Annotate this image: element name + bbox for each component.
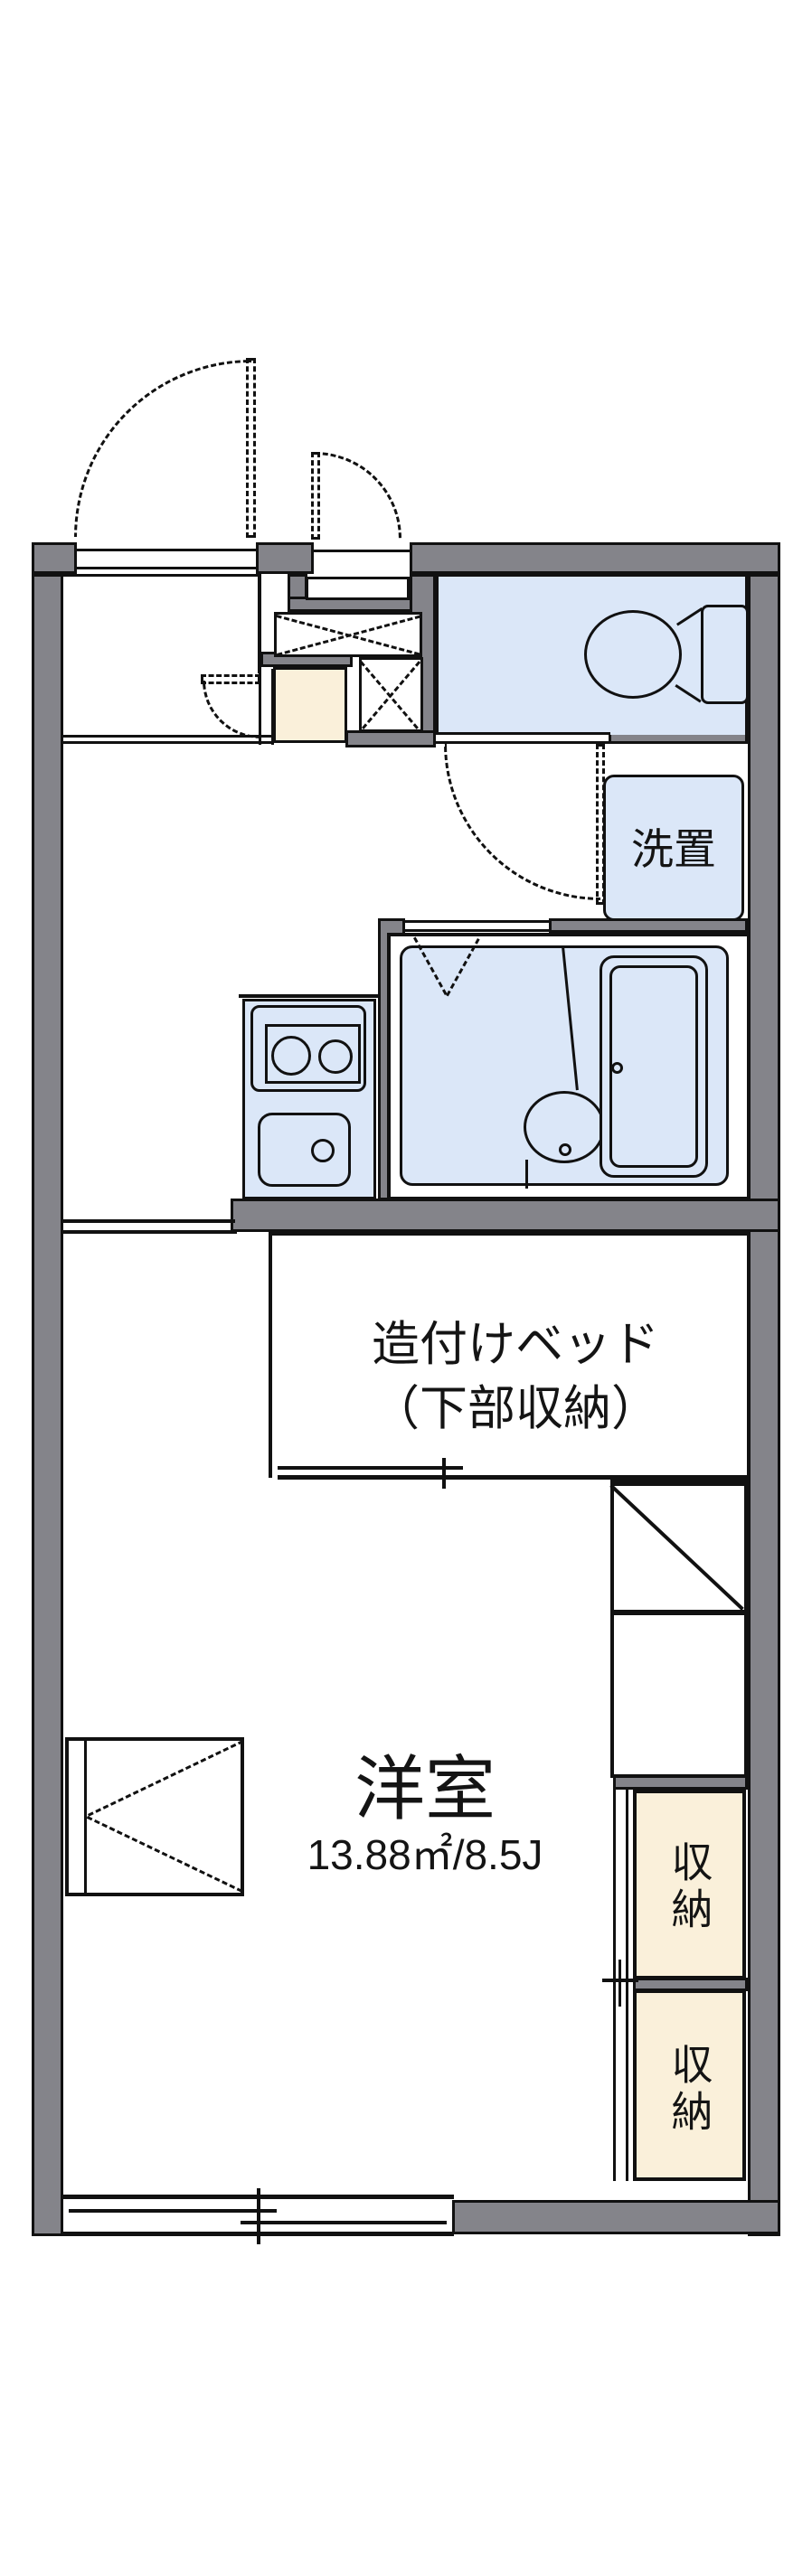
room-entry-line — [63, 1219, 235, 1223]
room-cabinet — [65, 1737, 244, 1896]
bed-edge-tick — [442, 1458, 446, 1489]
entry-opening-sill-inner — [77, 567, 256, 569]
entry-door-swing-arc — [74, 360, 251, 537]
meterbox-recess — [306, 577, 410, 600]
sink-drain — [311, 1139, 335, 1162]
kitchen-counter-lip — [239, 994, 380, 998]
window-center-tick — [257, 2188, 260, 2244]
storage-bottom-labelbox: 収納 — [633, 2026, 746, 2153]
bed-edge-line — [278, 1475, 751, 1480]
room-size-label: 13.88㎡/8.5J — [181, 1831, 669, 1878]
floor-plan: 洗置 造付けベッド （下部収納） 収納 収納 洋室 13.88㎡/8 — [0, 0, 812, 2576]
bed-edge-line — [278, 1466, 463, 1470]
meterbox-sill — [314, 550, 410, 552]
entry-opening-sill-outer — [77, 549, 256, 551]
hall-door-swing-arc — [203, 681, 260, 738]
hall-top-border — [63, 574, 260, 577]
bed-label: 造付けベッド （下部収納） — [289, 1312, 741, 1441]
bed-label-line1: 造付けベッド — [289, 1312, 741, 1377]
window-sash-rail — [69, 2209, 277, 2213]
room-name-label: 洋室 — [199, 1752, 651, 1826]
wall-middle-band — [231, 1199, 780, 1232]
washer-space-label: 洗置 — [603, 814, 744, 877]
kitchen-sink — [258, 1113, 351, 1187]
bed-label-line2: （下部収納） — [289, 1377, 741, 1441]
bathtub-knob — [611, 1062, 623, 1074]
wall-entry-bottom — [345, 730, 436, 747]
wall-bottom-right — [452, 2200, 780, 2234]
closet-rail-tick — [618, 1960, 621, 2007]
bathroom-doorway-sill — [405, 929, 551, 932]
meterbox-door-swing-arc — [315, 452, 401, 539]
toilet-door-swing-arc — [444, 744, 600, 900]
bath-basin-drain — [559, 1143, 571, 1156]
entry-step-line — [63, 741, 274, 744]
entry-tile — [273, 667, 347, 743]
wall-top-right — [410, 542, 780, 574]
storage-bottom-label: 収納 — [660, 2043, 720, 2137]
wall-top-mid — [256, 542, 314, 574]
bathroom-doorway-sill — [405, 920, 551, 923]
bath-divider-line — [525, 1160, 528, 1189]
wall-left — [32, 574, 63, 2236]
toilet-bowl-icon — [584, 610, 682, 699]
stove-burner-left — [271, 1036, 311, 1076]
hall-right-border — [258, 574, 261, 673]
toilet-tank-icon — [701, 605, 749, 704]
entry-doorway — [259, 669, 274, 745]
toilet-doorway-sill — [436, 732, 610, 735]
wall-top-left — [32, 542, 77, 574]
room-entry-line — [63, 1230, 237, 1234]
stove-burner-right — [318, 1039, 353, 1074]
window-sash-rail — [241, 2221, 447, 2224]
wall-right — [748, 574, 780, 2236]
